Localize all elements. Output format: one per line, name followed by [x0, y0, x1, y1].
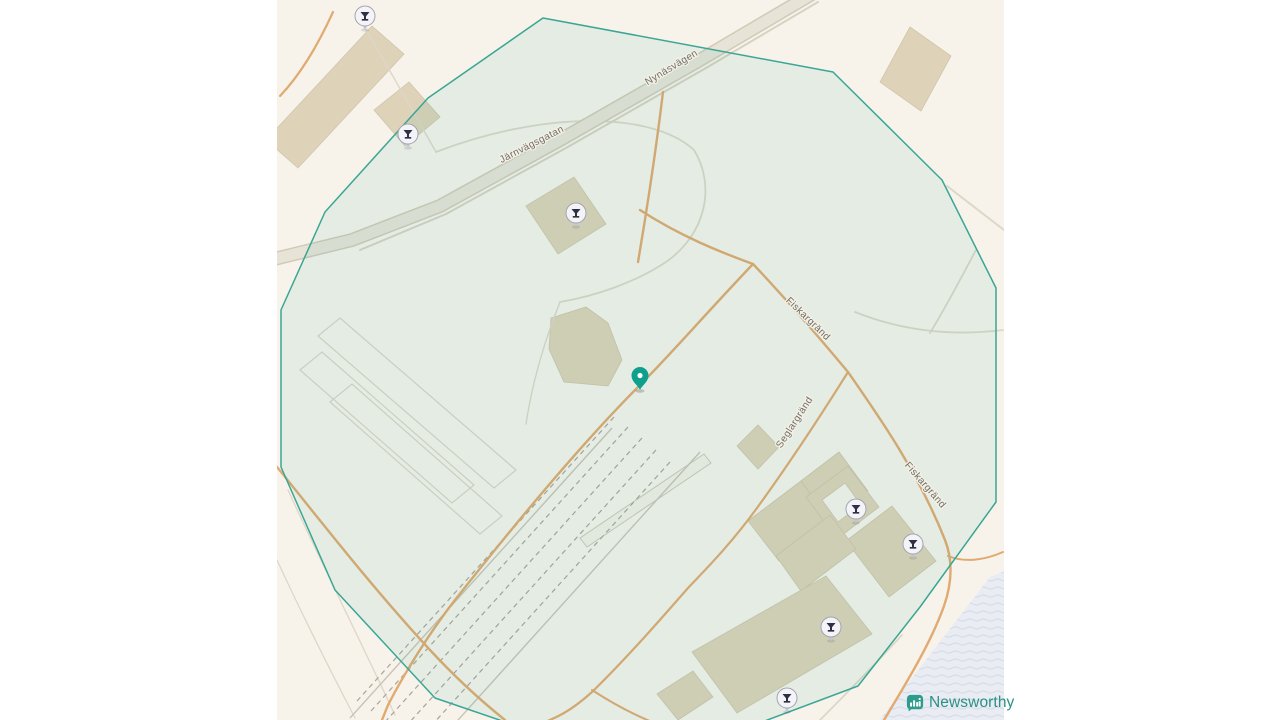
newsworthy-logo-icon — [906, 694, 924, 712]
attribution-link[interactable]: Newsworthy — [906, 694, 1014, 712]
attribution-brand: Newsworthy — [929, 694, 1014, 712]
map-canvas[interactable]: NynäsvägenJärnvägsgatanFiskargrändSeglar… — [277, 0, 1004, 720]
